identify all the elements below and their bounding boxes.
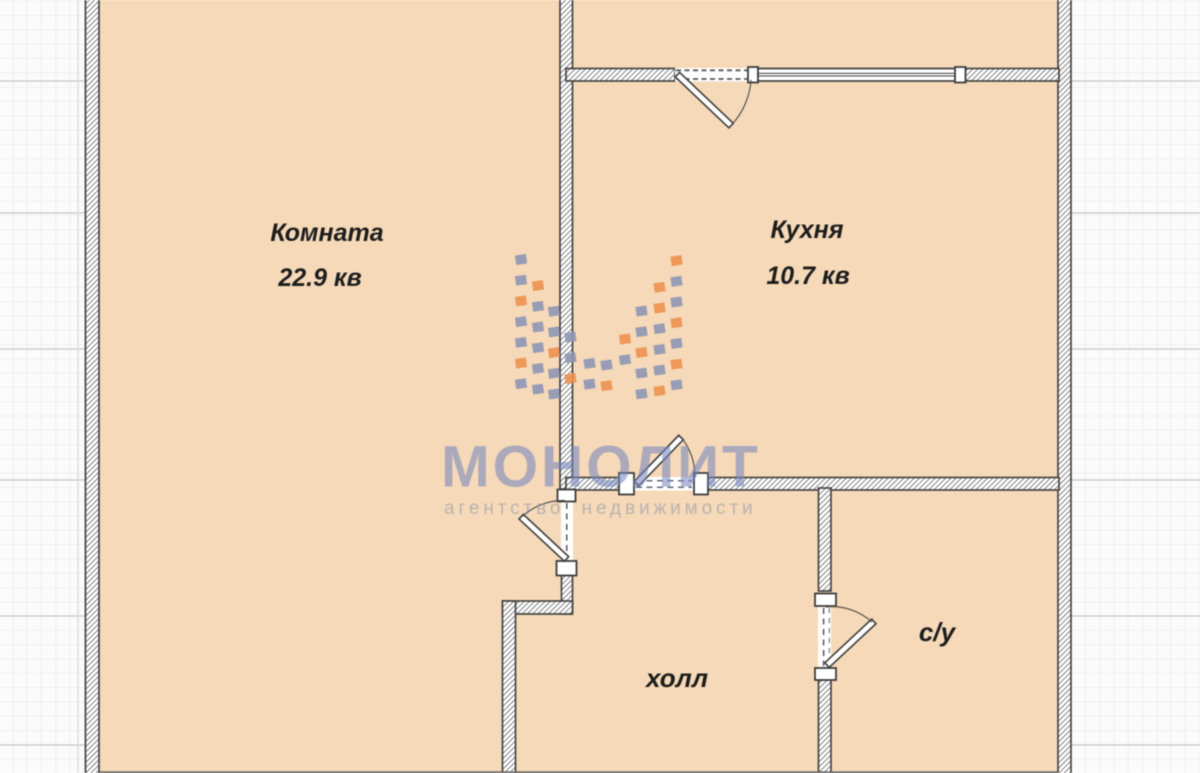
svg-text:МОНОЛИТ: МОНОЛИТ bbox=[441, 434, 761, 499]
svg-text:с/у: с/у bbox=[919, 617, 957, 647]
svg-text:10.7 кв: 10.7 кв bbox=[766, 262, 849, 290]
svg-text:агентство недвижимости: агентство недвижимости bbox=[444, 498, 757, 519]
svg-text:22.9 кв: 22.9 кв bbox=[277, 264, 361, 292]
svg-text:Кухня: Кухня bbox=[771, 216, 844, 244]
svg-text:холл: холл bbox=[644, 663, 708, 693]
svg-text:Комната: Комната bbox=[270, 219, 383, 247]
